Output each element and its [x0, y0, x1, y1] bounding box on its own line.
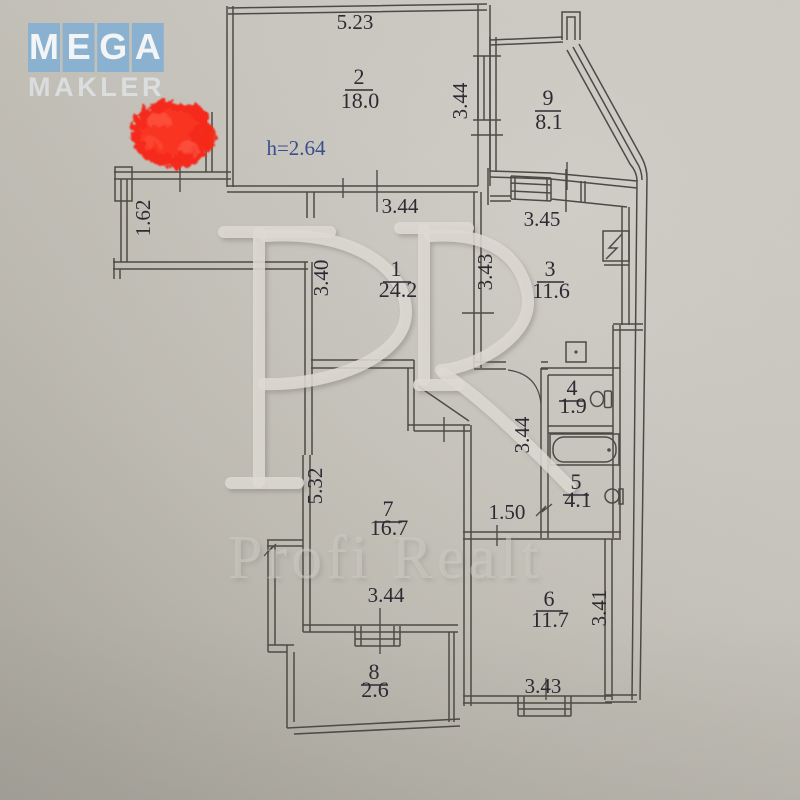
- svg-text:2: 2: [354, 64, 365, 89]
- svg-text:2.6: 2.6: [361, 677, 389, 702]
- svg-text:3.44: 3.44: [368, 583, 405, 607]
- svg-text:9: 9: [543, 85, 554, 110]
- svg-text:1.9: 1.9: [559, 393, 587, 418]
- svg-text:11.6: 11.6: [532, 278, 570, 303]
- svg-text:5.32: 5.32: [303, 468, 327, 505]
- svg-text:3.45: 3.45: [524, 207, 561, 231]
- svg-text:3.40: 3.40: [309, 260, 333, 297]
- svg-text:3.44: 3.44: [448, 82, 472, 119]
- svg-text:A: A: [135, 26, 161, 67]
- svg-text:16.7: 16.7: [370, 515, 409, 540]
- svg-text:8.1: 8.1: [535, 109, 563, 134]
- svg-text:3.44: 3.44: [382, 194, 419, 218]
- svg-text:E: E: [67, 26, 91, 67]
- svg-text:3.41: 3.41: [587, 590, 611, 627]
- svg-text:MAKLER: MAKLER: [28, 72, 165, 102]
- svg-text:5.23: 5.23: [337, 10, 374, 34]
- svg-text:4.1: 4.1: [564, 487, 592, 512]
- svg-text:h=2.64: h=2.64: [266, 136, 326, 160]
- svg-text:3.44: 3.44: [510, 416, 534, 453]
- svg-text:M: M: [29, 26, 59, 67]
- svg-text:11.7: 11.7: [531, 607, 569, 632]
- svg-text:24.2: 24.2: [379, 277, 418, 302]
- svg-text:18.0: 18.0: [341, 88, 380, 113]
- svg-text:G: G: [99, 26, 127, 67]
- svg-text:3.43: 3.43: [525, 674, 562, 698]
- svg-text:1.62: 1.62: [131, 200, 155, 237]
- svg-text:3.43: 3.43: [473, 254, 497, 291]
- svg-text:1.50: 1.50: [489, 500, 526, 524]
